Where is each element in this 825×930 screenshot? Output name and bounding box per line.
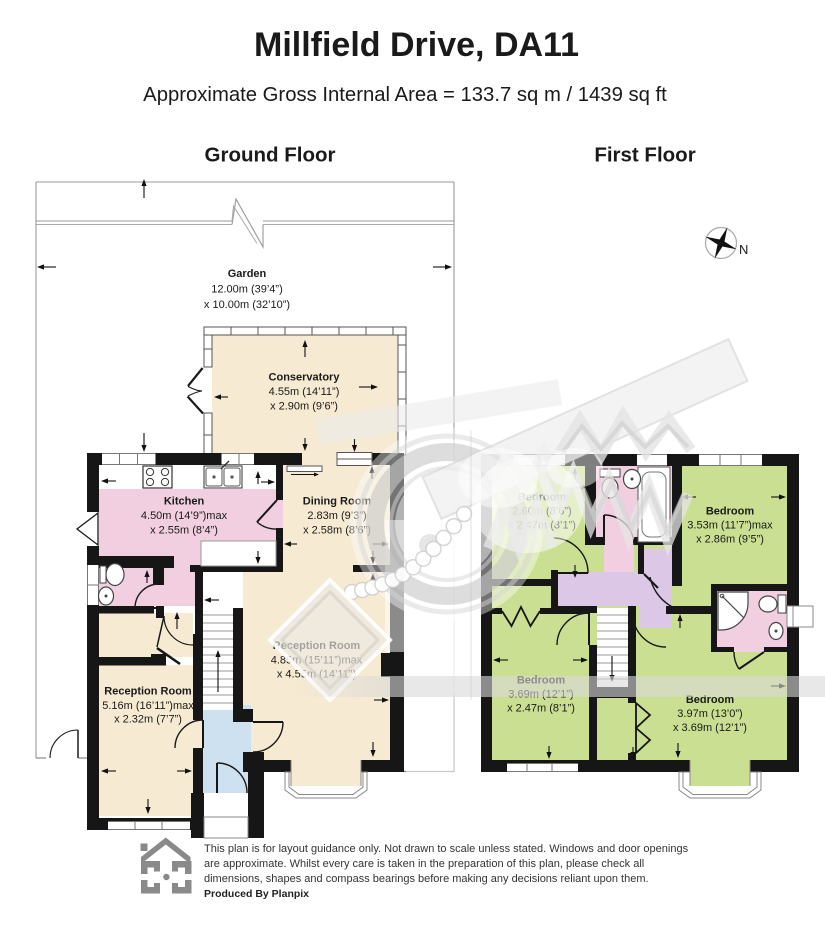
svg-text:Bedroom: Bedroom [706,506,755,518]
svg-text:x 3.69m (12’1”): x 3.69m (12’1”) [673,722,747,734]
svg-text:3.97m (13’0”): 3.97m (13’0”) [677,708,742,720]
svg-text:Kitchen: Kitchen [164,496,205,508]
svg-text:Ground Floor: Ground Floor [205,144,336,167]
svg-text:Millfield Drive, DA11: Millfield Drive, DA11 [254,26,579,64]
svg-text:dimensions, shapes and compass: dimensions, shapes and compass bearings … [204,873,649,885]
svg-text:x 2.55m (8’4”): x 2.55m (8’4”) [150,525,218,537]
svg-text:First Floor: First Floor [594,144,695,167]
svg-text:This plan is for layout guidan: This plan is for layout guidance only. N… [204,843,689,855]
svg-text:are approximate. Whilst every: are approximate. Whilst every care is ta… [204,858,644,870]
svg-text:Conservatory: Conservatory [269,372,341,384]
svg-text:Produced By Planpix: Produced By Planpix [204,888,309,900]
svg-text:Approximate Gross Internal Are: Approximate Gross Internal Area = 133.7 … [143,84,667,106]
svg-text:Reception Room: Reception Room [104,686,192,698]
svg-text:Garden: Garden [228,268,267,280]
svg-text:x 2.47m (8’1”): x 2.47m (8’1”) [507,703,575,715]
svg-text:12.00m (39’4”): 12.00m (39’4”) [211,284,283,296]
svg-text:4.50m (14’9”)max: 4.50m (14’9”)max [141,510,228,522]
svg-text:3.53m (11’7”)max: 3.53m (11’7”)max [687,520,773,532]
svg-text:x 2.86m (9’5”): x 2.86m (9’5”) [696,534,764,546]
svg-text:5.16m (16’11”)max: 5.16m (16’11”)max [102,700,194,712]
svg-text:x 2.32m (7’7”): x 2.32m (7’7”) [114,714,182,726]
svg-text:x 10.00m (32’10”): x 10.00m (32’10”) [204,299,290,311]
svg-text:N: N [739,242,748,257]
svg-text:x 2.90m (9’6”): x 2.90m (9’6”) [270,401,338,413]
svg-text:4.55m (14’11”): 4.55m (14’11”) [269,386,340,398]
